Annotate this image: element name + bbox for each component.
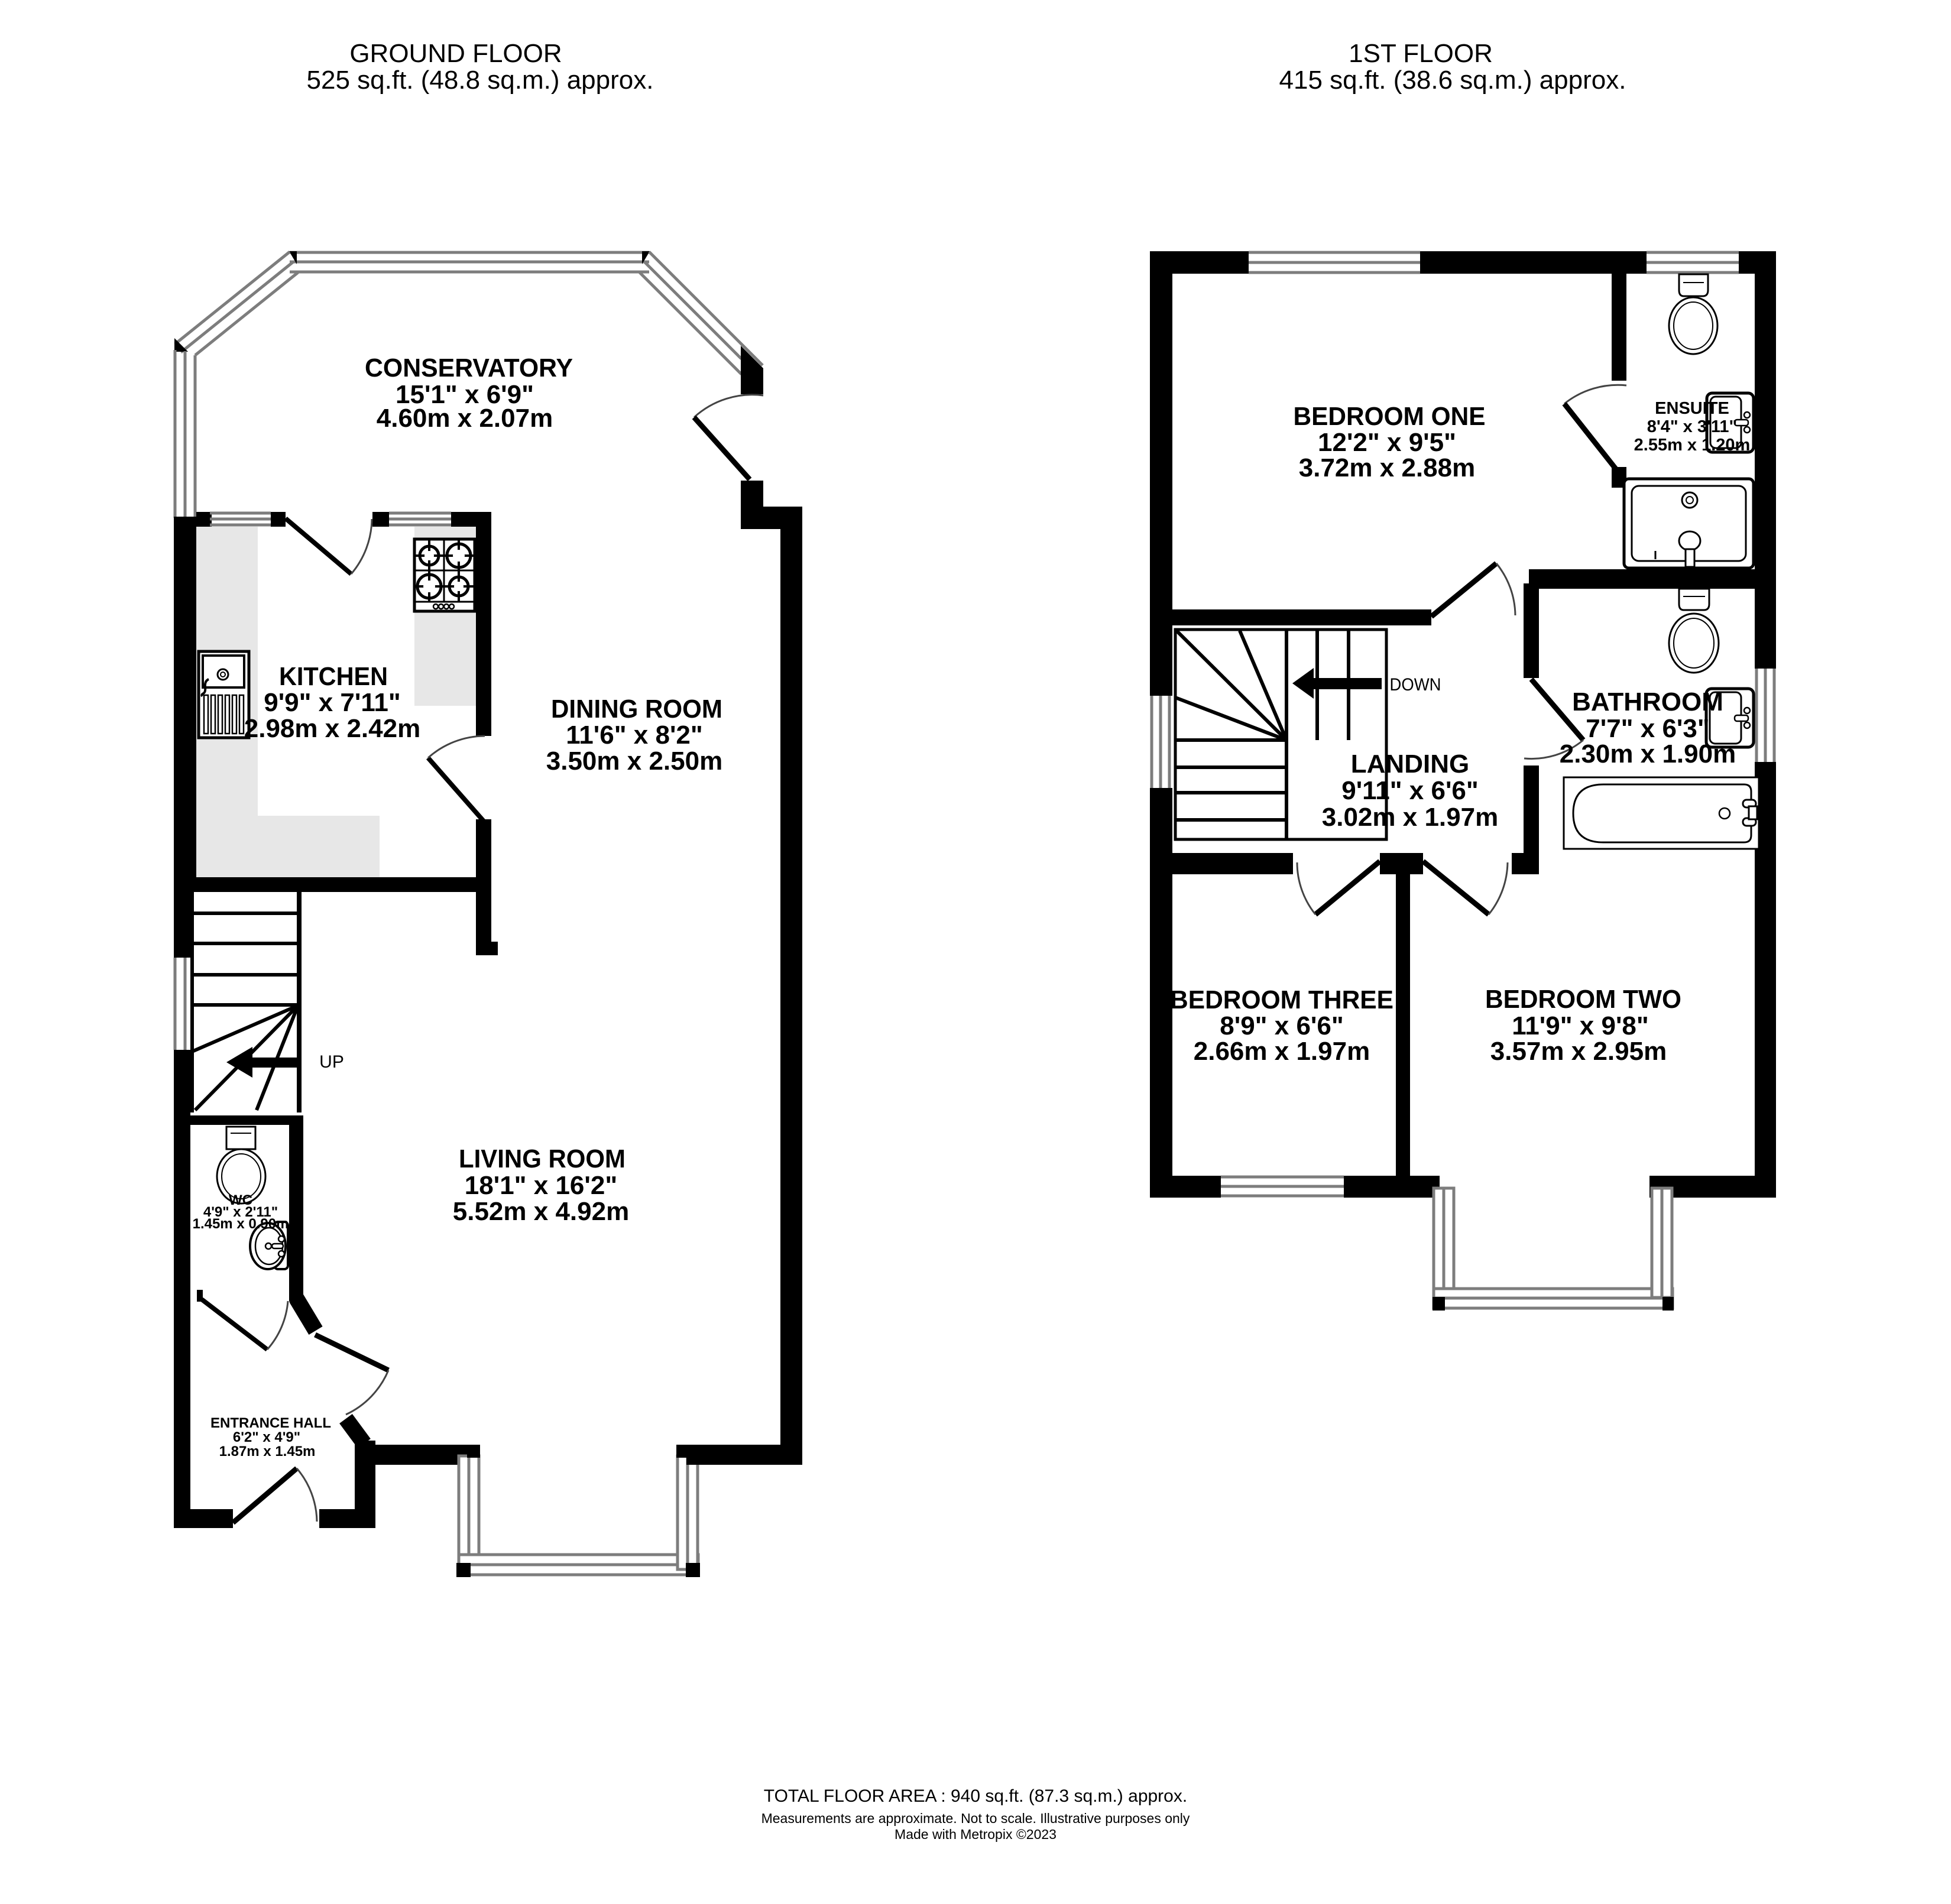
- svg-text:BEDROOM TWO: BEDROOM TWO: [1485, 985, 1681, 1014]
- svg-text:BATHROOM: BATHROOM: [1572, 687, 1723, 716]
- svg-text:3.50m x 2.50m: 3.50m x 2.50m: [546, 747, 722, 776]
- svg-text:UP: UP: [319, 1052, 344, 1072]
- svg-text:CONSERVATORY: CONSERVATORY: [365, 353, 573, 382]
- svg-text:DINING ROOM: DINING ROOM: [551, 695, 722, 724]
- svg-text:3.72m x 2.88m: 3.72m x 2.88m: [1299, 453, 1475, 482]
- svg-text:7'7" x 6'3": 7'7" x 6'3": [1586, 714, 1709, 743]
- svg-text:11'6" x 8'2": 11'6" x 8'2": [566, 721, 703, 750]
- svg-text:GROUND FLOOR: GROUND FLOOR: [349, 39, 562, 68]
- svg-text:ENSUITE: ENSUITE: [1655, 399, 1729, 418]
- svg-text:2.66m x 1.97m: 2.66m x 1.97m: [1194, 1037, 1370, 1066]
- svg-text:12'2" x 9'5": 12'2" x 9'5": [1318, 428, 1456, 457]
- svg-text:8'9" x 6'6": 8'9" x 6'6": [1220, 1011, 1343, 1040]
- svg-text:415 sq.ft. (38.6 sq.m.) approx: 415 sq.ft. (38.6 sq.m.) approx.: [1279, 66, 1626, 95]
- svg-text:KITCHEN: KITCHEN: [279, 662, 388, 691]
- svg-text:9'9" x 7'11": 9'9" x 7'11": [264, 688, 401, 717]
- svg-text:DOWN: DOWN: [1390, 675, 1441, 695]
- svg-text:3.57m x 2.95m: 3.57m x 2.95m: [1490, 1037, 1667, 1066]
- svg-text:TOTAL FLOOR AREA : 940 sq.ft.: TOTAL FLOOR AREA : 940 sq.ft. (87.3 sq.m…: [764, 1786, 1187, 1806]
- svg-text:BEDROOM ONE: BEDROOM ONE: [1294, 402, 1486, 431]
- svg-text:525 sq.ft. (48.8 sq.m.) approx: 525 sq.ft. (48.8 sq.m.) approx.: [307, 66, 654, 95]
- svg-text:1.45m x 0.90m: 1.45m x 0.90m: [193, 1216, 289, 1232]
- svg-text:1.87m x 1.45m: 1.87m x 1.45m: [219, 1444, 316, 1459]
- svg-text:Made with Metropix ©2023: Made with Metropix ©2023: [895, 1827, 1056, 1842]
- svg-text:LANDING: LANDING: [1351, 750, 1469, 779]
- svg-text:3.02m x 1.97m: 3.02m x 1.97m: [1322, 803, 1498, 832]
- svg-text:BEDROOM THREE: BEDROOM THREE: [1170, 985, 1393, 1014]
- svg-text:Measurements are approximate.: Measurements are approximate. Not to sca…: [761, 1811, 1190, 1826]
- svg-text:6'2" x 4'9": 6'2" x 4'9": [233, 1429, 300, 1445]
- svg-text:11'9" x 9'8": 11'9" x 9'8": [1512, 1011, 1649, 1040]
- svg-text:2.98m x 2.42m: 2.98m x 2.42m: [244, 714, 420, 743]
- svg-text:4.60m x 2.07m: 4.60m x 2.07m: [377, 404, 553, 433]
- svg-text:5.52m x 4.92m: 5.52m x 4.92m: [453, 1197, 629, 1226]
- svg-text:18'1" x 16'2": 18'1" x 16'2": [465, 1171, 617, 1200]
- svg-text:2.30m x 1.90m: 2.30m x 1.90m: [1560, 739, 1736, 768]
- svg-text:ENTRANCE HALL: ENTRANCE HALL: [210, 1415, 331, 1431]
- svg-text:1ST FLOOR: 1ST FLOOR: [1349, 39, 1493, 68]
- svg-text:8'4" x 3'11": 8'4" x 3'11": [1647, 417, 1738, 436]
- svg-text:2.55m x 1.20m: 2.55m x 1.20m: [1634, 436, 1751, 455]
- svg-text:LIVING ROOM: LIVING ROOM: [459, 1144, 626, 1173]
- svg-text:9'11" x 6'6": 9'11" x 6'6": [1341, 776, 1479, 805]
